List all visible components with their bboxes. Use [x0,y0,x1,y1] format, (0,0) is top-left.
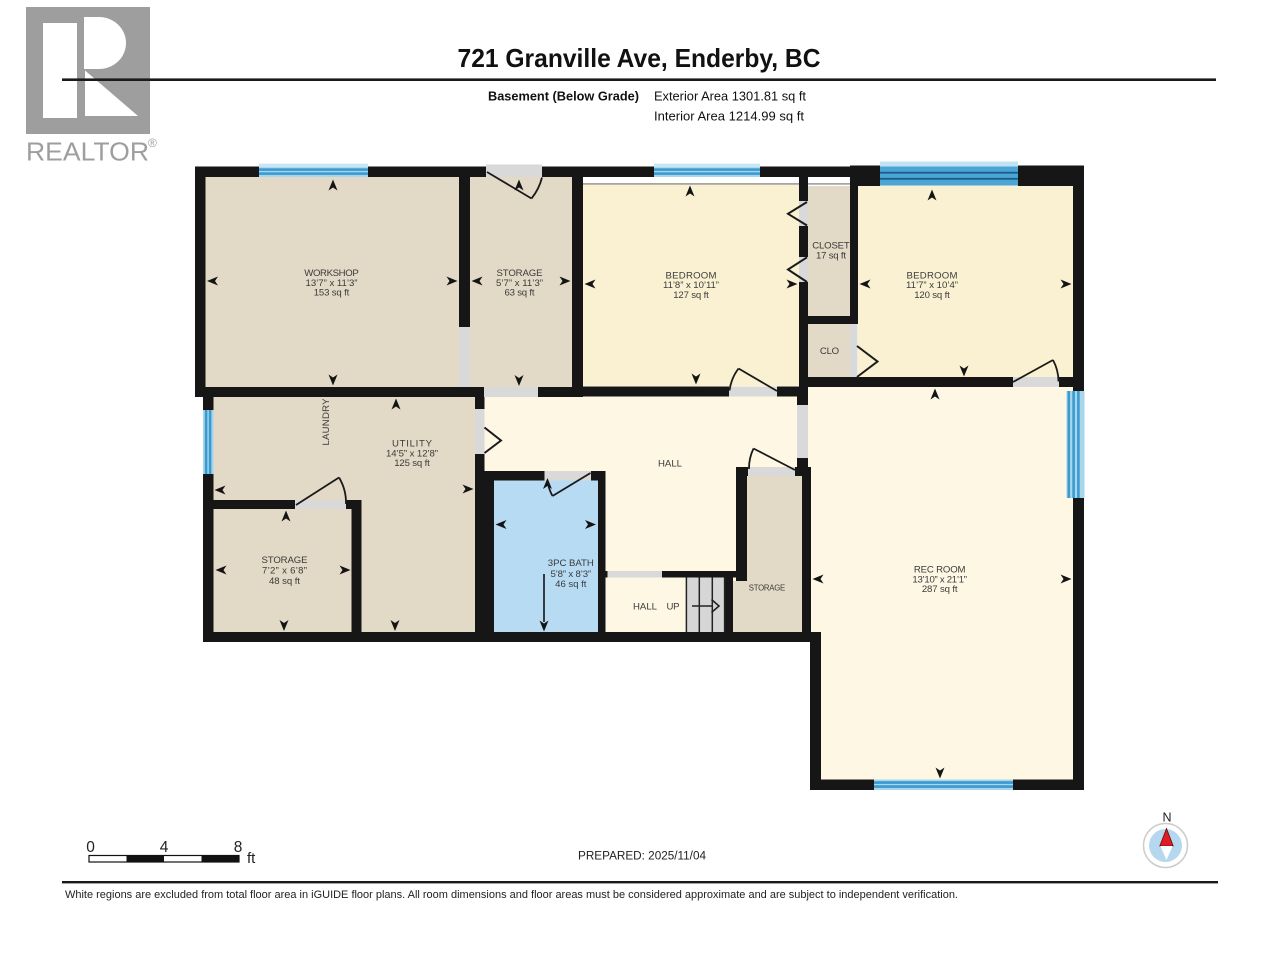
svg-text:46 sq ft: 46 sq ft [555,579,587,590]
svg-text:N: N [1162,811,1171,825]
svg-text:48 sq ft: 48 sq ft [269,576,300,587]
svg-text:STORAGE: STORAGE [262,555,308,566]
svg-text:Basement (Below Grade): Basement (Below Grade) [488,89,639,104]
svg-text:ft: ft [247,850,256,867]
svg-text:STORAGE: STORAGE [749,584,786,593]
svg-text:4: 4 [160,839,169,856]
svg-text:Exterior Area 1301.81 sq ft: Exterior Area 1301.81 sq ft [654,89,806,104]
svg-text:®: ® [148,136,157,150]
svg-text:125 sq ft: 125 sq ft [394,458,430,469]
svg-text:120 sq ft: 120 sq ft [914,290,950,301]
svg-text:287 sq ft: 287 sq ft [922,584,958,595]
svg-text:REALTOR: REALTOR [26,139,149,167]
svg-text:CLO: CLO [820,346,839,357]
svg-text:0: 0 [86,839,95,856]
svg-text:HALL: HALL [633,602,658,613]
svg-text:Interior Area 1214.99 sq ft: Interior Area 1214.99 sq ft [654,108,804,123]
svg-text:63 sq ft: 63 sq ft [505,288,535,299]
svg-text:127 sq ft: 127 sq ft [673,290,709,301]
svg-text:White regions are excluded fro: White regions are excluded from total fl… [65,889,958,901]
svg-text:7’2” x 6’8”: 7’2” x 6’8” [262,566,307,577]
svg-text:153 sq ft: 153 sq ft [314,288,350,299]
svg-text:8: 8 [234,839,243,856]
svg-text:721 Granville Ave, Enderby, BC: 721 Granville Ave, Enderby, BC [458,43,821,73]
svg-text:HALL: HALL [658,459,683,470]
svg-text:3PC BATH: 3PC BATH [548,558,594,569]
svg-text:LAUNDRY: LAUNDRY [321,398,332,446]
svg-text:UP: UP [667,602,680,613]
svg-text:17 sq ft: 17 sq ft [816,250,846,261]
svg-text:PREPARED: 2025/11/04: PREPARED: 2025/11/04 [578,851,707,863]
